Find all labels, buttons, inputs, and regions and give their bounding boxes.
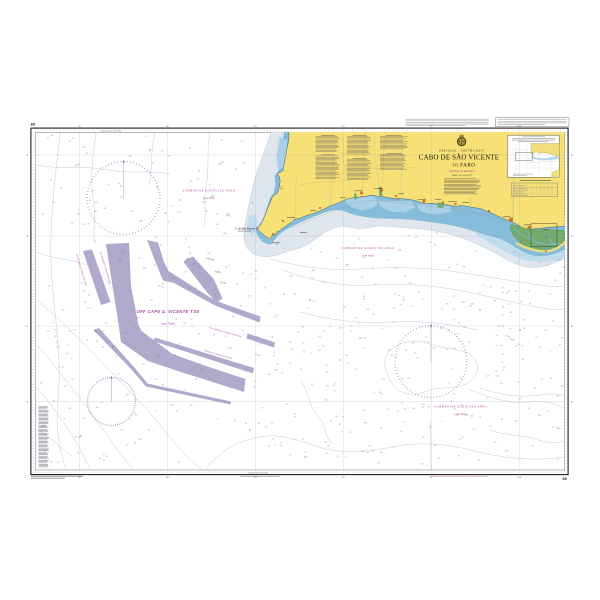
svg-text:11: 11 [264,288,266,290]
svg-text:61: 61 [448,330,450,332]
svg-text:SUBMARINE EXERCISE AREA: SUBMARINE EXERCISE AREA [342,246,395,250]
svg-text:41: 41 [154,264,156,267]
svg-text:31: 31 [72,138,74,140]
svg-text:(see Note): (see Note) [203,197,214,200]
svg-text:21: 21 [46,331,49,333]
svg-text:(continued on Chart 91): (continued on Chart 91) [101,129,121,132]
svg-text:71: 71 [129,291,131,293]
svg-text:8°W: 8°W [517,126,521,128]
svg-text:37°: 37° [25,326,28,328]
svg-text:91: 91 [540,379,542,381]
svg-text:51: 51 [471,415,473,417]
svg-text:71: 71 [353,244,355,246]
svg-text:51: 51 [126,445,128,447]
svg-text:31: 31 [355,318,357,320]
svg-text:41: 41 [400,430,402,433]
svg-text:61: 61 [429,427,431,429]
svg-text:CABO DE SÃO VICENTE: CABO DE SÃO VICENTE [419,154,499,162]
svg-text:51: 51 [216,214,218,216]
svg-text:51: 51 [135,400,137,402]
svg-text:11: 11 [485,378,487,380]
svg-text:91: 91 [517,382,519,384]
svg-text:641: 641 [346,263,349,266]
svg-text:11: 11 [310,249,312,251]
svg-text:21: 21 [145,136,148,138]
svg-text:91: 91 [118,183,120,185]
svg-text:91: 91 [158,355,160,357]
svg-text:8°W: 8°W [517,477,521,479]
svg-text:71: 71 [274,445,276,447]
svg-text:31: 31 [311,278,313,280]
svg-text:541: 541 [247,294,250,297]
svg-text:11: 11 [339,343,341,345]
svg-text:31: 31 [326,365,328,367]
svg-text:61: 61 [99,458,101,460]
svg-text:581: 581 [368,446,371,448]
svg-text:11: 11 [334,382,336,384]
svg-text:SUBMARINE EXERCISE AREA: SUBMARINE EXERCISE AREA [183,189,236,193]
svg-text:11: 11 [502,354,504,356]
svg-text:SCALE 1:175 000 (Lat 37°): SCALE 1:175 000 (Lat 37°) [452,174,473,177]
svg-text:69: 69 [563,477,567,481]
svg-text:69: 69 [31,123,35,127]
svg-text:21: 21 [420,299,423,301]
svg-text:71: 71 [52,323,54,325]
svg-text:21: 21 [447,382,450,384]
svg-text:81: 81 [119,296,121,298]
svg-text:21: 21 [548,294,551,296]
svg-text:21: 21 [522,328,525,330]
svg-text:(continued on Chart 92): (continued on Chart 92) [248,472,268,475]
svg-text:DEPTHS IN METRES: DEPTHS IN METRES [449,171,475,173]
svg-text:11: 11 [103,460,105,462]
svg-text:PORTUGAL - SOUTH COAST: PORTUGAL - SOUTH COAST [439,150,485,153]
svg-text:37°: 37° [571,326,574,328]
svg-text:C. de São Vicente: C. de São Vicente [235,228,256,231]
svg-text:21: 21 [268,303,271,305]
svg-text:(see Note): (see Note) [161,322,175,326]
svg-text:11: 11 [281,373,283,375]
svg-text:61: 61 [43,426,45,428]
svg-text:41: 41 [197,177,199,180]
svg-text:61: 61 [342,417,344,419]
svg-text:81: 81 [323,331,325,333]
svg-text:61: 61 [375,284,377,286]
svg-text:451: 451 [471,303,474,306]
svg-text:OFF CAPE S. VICENTE TSS: OFF CAPE S. VICENTE TSS [137,309,200,314]
svg-text:701: 701 [54,336,57,338]
svg-text:11: 11 [280,443,282,445]
svg-text:21: 21 [356,323,359,325]
svg-text:51: 51 [394,293,396,295]
